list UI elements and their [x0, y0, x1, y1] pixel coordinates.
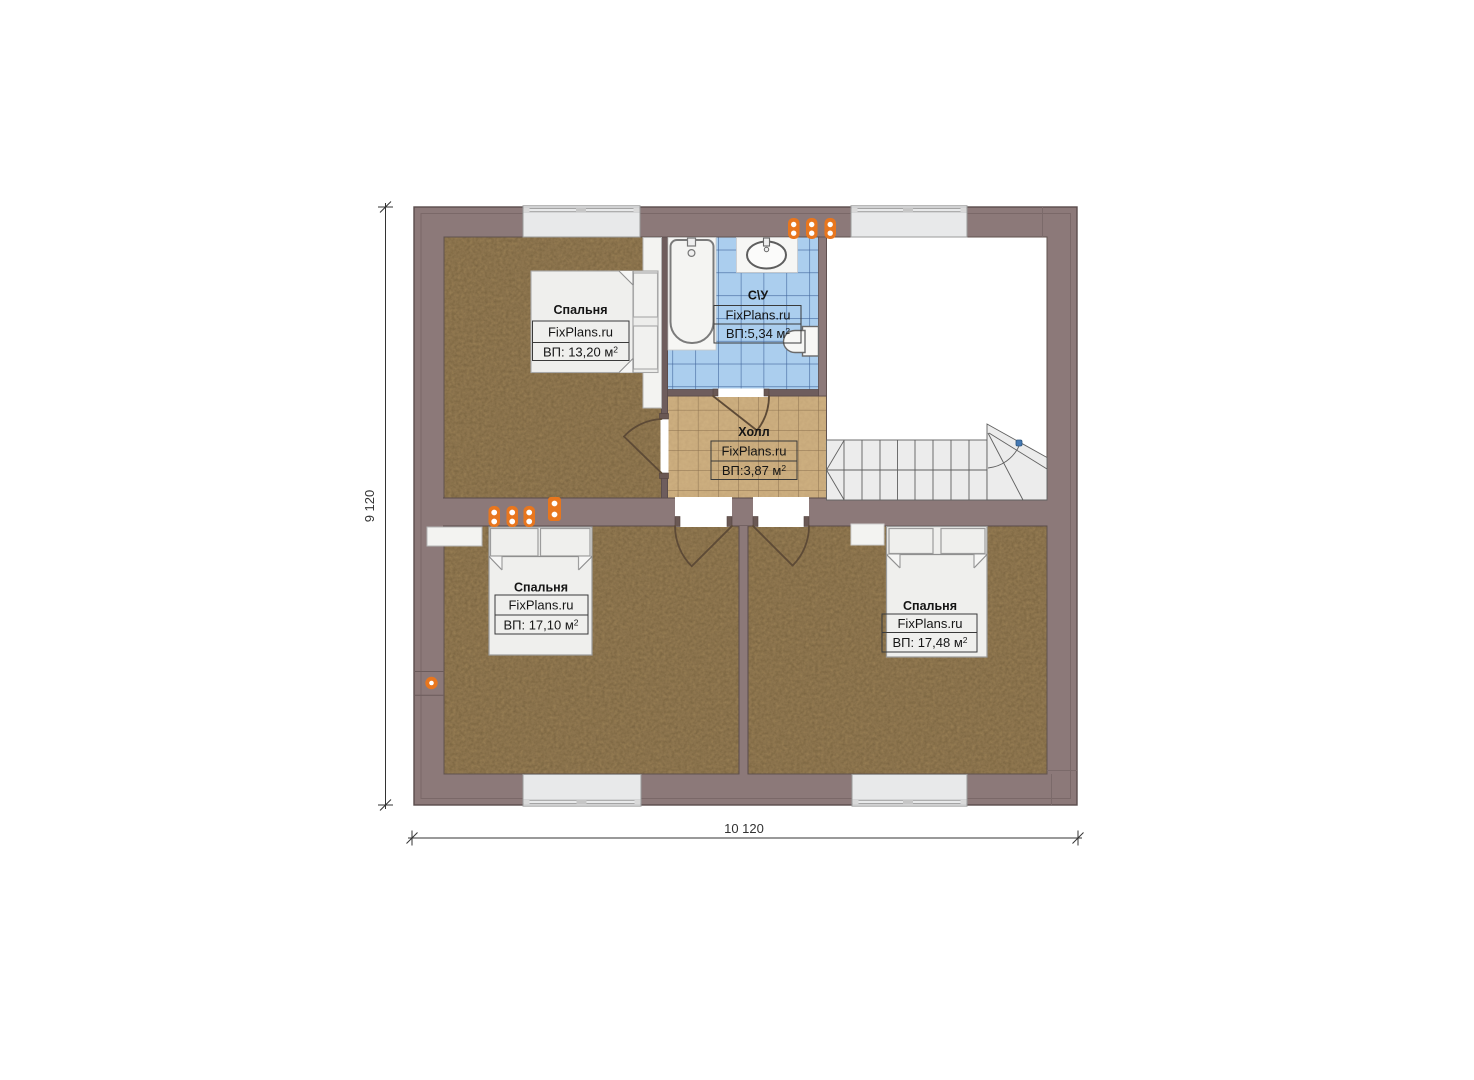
svg-text:ВП:5,34 м2: ВП:5,34 м2 — [726, 326, 790, 341]
svg-text:9 120: 9 120 — [362, 490, 377, 523]
svg-text:FixPlans.ru: FixPlans.ru — [721, 444, 786, 459]
svg-text:ВП: 13,20 м2: ВП: 13,20 м2 — [543, 345, 618, 360]
svg-text:FixPlans.ru: FixPlans.ru — [508, 598, 573, 613]
svg-text:Спальня: Спальня — [554, 303, 608, 317]
svg-text:FixPlans.ru: FixPlans.ru — [897, 616, 962, 631]
svg-text:FixPlans.ru: FixPlans.ru — [725, 308, 790, 323]
svg-text:FixPlans.ru: FixPlans.ru — [548, 325, 613, 340]
svg-text:ВП:3,87 м2: ВП:3,87 м2 — [722, 463, 786, 478]
svg-text:10 120: 10 120 — [724, 821, 764, 836]
svg-text:Холл: Холл — [738, 425, 769, 439]
svg-text:Спальня: Спальня — [514, 581, 568, 595]
svg-text:Спальня: Спальня — [903, 599, 957, 613]
svg-text:ВП: 17,48 м2: ВП: 17,48 м2 — [892, 635, 967, 650]
svg-text:ВП: 17,10 м2: ВП: 17,10 м2 — [503, 618, 578, 633]
svg-text:С\У: С\У — [748, 289, 769, 303]
